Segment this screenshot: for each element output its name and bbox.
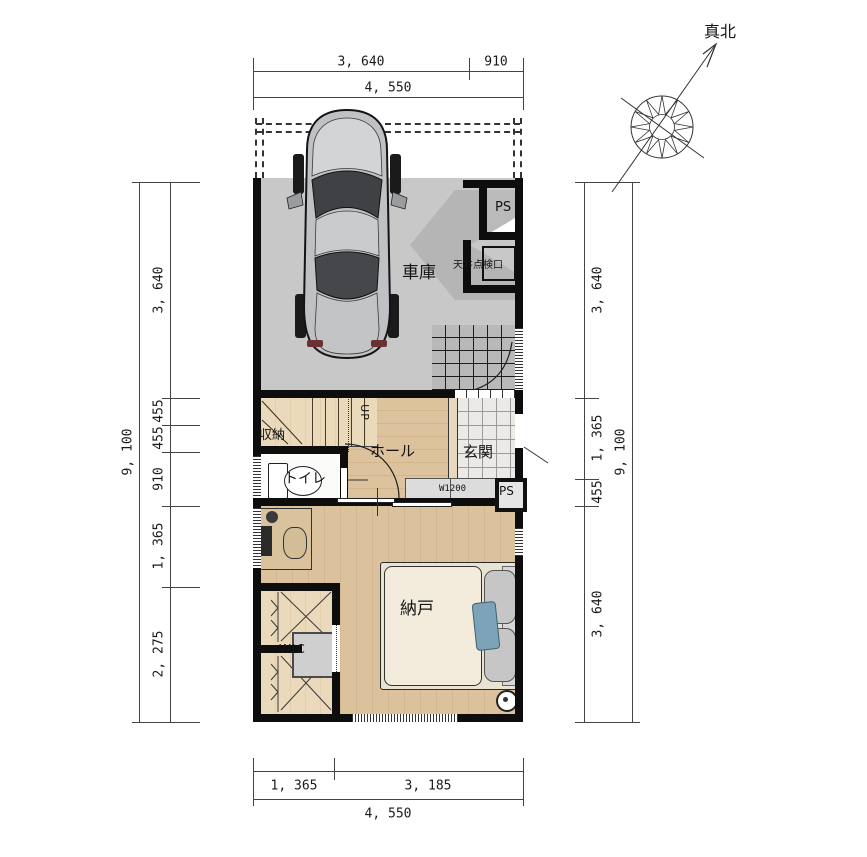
toilet-door-opening bbox=[341, 468, 347, 498]
nook-wall-bottom bbox=[463, 285, 523, 293]
wall-wic-north bbox=[253, 583, 340, 591]
wall-garage-south bbox=[253, 390, 455, 398]
front-door-opening bbox=[515, 414, 523, 448]
storeroom-window-bottom bbox=[352, 714, 458, 722]
north-label: 真北 bbox=[704, 18, 736, 42]
car-mirror-left bbox=[287, 192, 303, 209]
room-label-garage: 車庫 bbox=[402, 258, 436, 283]
sliding-door-center-mark bbox=[377, 488, 378, 516]
front-door-swing-mark bbox=[524, 447, 548, 463]
stair-boundary-dotted-line bbox=[348, 392, 349, 452]
room-label-entrance: 玄関 bbox=[463, 441, 493, 462]
storeroom-window-right bbox=[515, 528, 523, 556]
bed-mattress bbox=[384, 566, 482, 686]
sliding-door-leaf-2 bbox=[392, 502, 452, 507]
porch-door-arc bbox=[470, 342, 512, 391]
car bbox=[287, 110, 407, 358]
wall-top-right bbox=[463, 180, 523, 188]
sliding-door-leaf-1 bbox=[337, 498, 395, 503]
room-label-hall: ホール bbox=[370, 440, 415, 461]
plan-drawing-layer bbox=[0, 0, 867, 857]
entrance-threshold bbox=[455, 390, 515, 398]
wall-toilet-north bbox=[253, 446, 348, 454]
car-mirror-right bbox=[391, 192, 407, 209]
storeroom-window-left bbox=[253, 508, 261, 568]
ps-bottom-label: PS bbox=[499, 484, 514, 498]
ps-top-label: PS bbox=[495, 200, 511, 215]
toilet-window bbox=[253, 456, 261, 498]
shoe-cabinet-label: W1200 bbox=[439, 484, 466, 494]
entrance-step-strip bbox=[448, 398, 458, 478]
desk-plant bbox=[266, 511, 278, 523]
desk-chair bbox=[283, 527, 307, 559]
compass-rose bbox=[612, 44, 716, 192]
floor-plan-canvas: 3, 640 910 4, 550 1, 365 3, 185 4, 550 9… bbox=[0, 0, 867, 857]
room-label-wic: WIC bbox=[279, 642, 306, 656]
desk-monitor bbox=[260, 526, 272, 556]
floor-circle-dot bbox=[503, 697, 508, 702]
stairs-up-label: UP bbox=[358, 404, 371, 421]
room-label-closet: 収納 bbox=[259, 424, 285, 443]
ps-wall-bottom bbox=[479, 232, 523, 240]
room-label-storeroom: 納戸 bbox=[400, 594, 434, 619]
room-label-toilet: トイレ bbox=[284, 468, 326, 488]
inspection-hatch-label: 天井点検口 bbox=[453, 256, 503, 271]
garage-side-opening bbox=[515, 328, 523, 390]
wall-right bbox=[515, 178, 523, 722]
bed-pillow-blue bbox=[472, 601, 501, 651]
wic-opening-dashed-line bbox=[336, 625, 337, 672]
